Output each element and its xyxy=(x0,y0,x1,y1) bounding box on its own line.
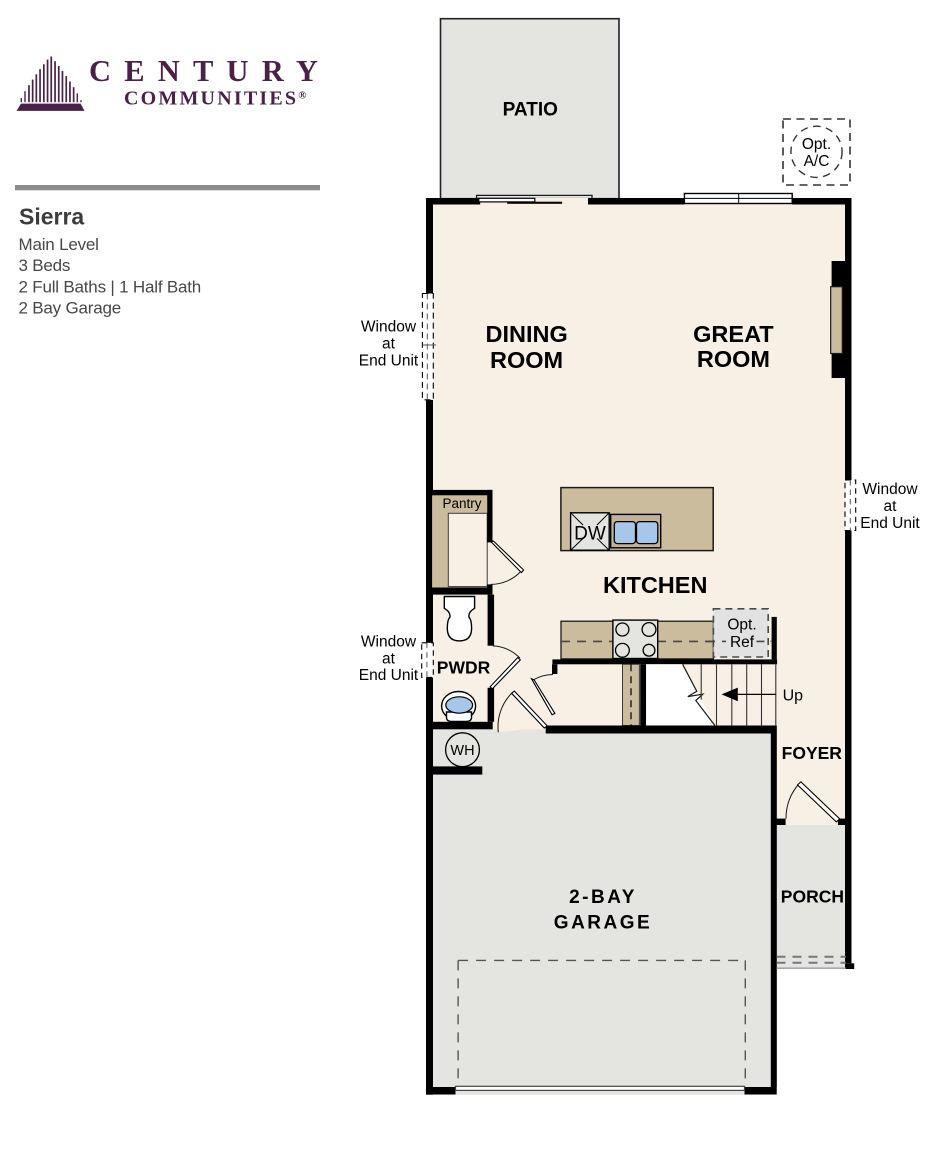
svg-text:GREAT: GREAT xyxy=(693,321,774,347)
svg-text:Window: Window xyxy=(361,319,417,336)
svg-text:ROOM: ROOM xyxy=(490,347,563,373)
svg-text:End Unit: End Unit xyxy=(359,352,419,369)
svg-text:PWDR: PWDR xyxy=(437,658,491,678)
svg-text:2-BAY: 2-BAY xyxy=(569,887,637,908)
svg-text:KITCHEN: KITCHEN xyxy=(603,572,707,598)
svg-text:Main Level: Main Level xyxy=(19,235,99,254)
svg-text:DW: DW xyxy=(574,523,606,544)
svg-text:End Unit: End Unit xyxy=(359,667,419,684)
svg-text:2 Bay Garage: 2 Bay Garage xyxy=(19,299,122,318)
svg-text:PATIO: PATIO xyxy=(503,99,558,120)
svg-text:WH: WH xyxy=(450,743,474,759)
svg-text:at: at xyxy=(884,498,898,515)
svg-text:2 Full Baths | 1 Half Bath: 2 Full Baths | 1 Half Bath xyxy=(19,277,202,296)
svg-text:FOYER: FOYER xyxy=(782,743,843,763)
svg-text:Ref: Ref xyxy=(730,634,755,651)
svg-text:Window: Window xyxy=(862,481,918,498)
svg-text:CENTURY: CENTURY xyxy=(89,54,331,88)
svg-text:COMMUNITIES®: COMMUNITIES® xyxy=(124,87,309,109)
svg-text:End Unit: End Unit xyxy=(860,515,920,532)
svg-text:Window: Window xyxy=(361,634,417,651)
svg-text:A/C: A/C xyxy=(804,153,830,170)
svg-text:at: at xyxy=(382,650,396,667)
svg-text:Up: Up xyxy=(783,688,804,705)
svg-text:DINING: DINING xyxy=(485,321,567,347)
svg-text:PORCH: PORCH xyxy=(781,886,844,906)
svg-text:3 Beds: 3 Beds xyxy=(19,256,71,275)
svg-text:GARAGE: GARAGE xyxy=(554,913,652,934)
svg-text:at: at xyxy=(382,336,396,353)
svg-text:Sierra: Sierra xyxy=(19,204,84,230)
svg-text:ROOM: ROOM xyxy=(697,346,770,372)
svg-text:Opt.: Opt. xyxy=(802,136,831,153)
svg-text:Pantry: Pantry xyxy=(442,496,481,511)
svg-text:Opt.: Opt. xyxy=(727,616,756,633)
